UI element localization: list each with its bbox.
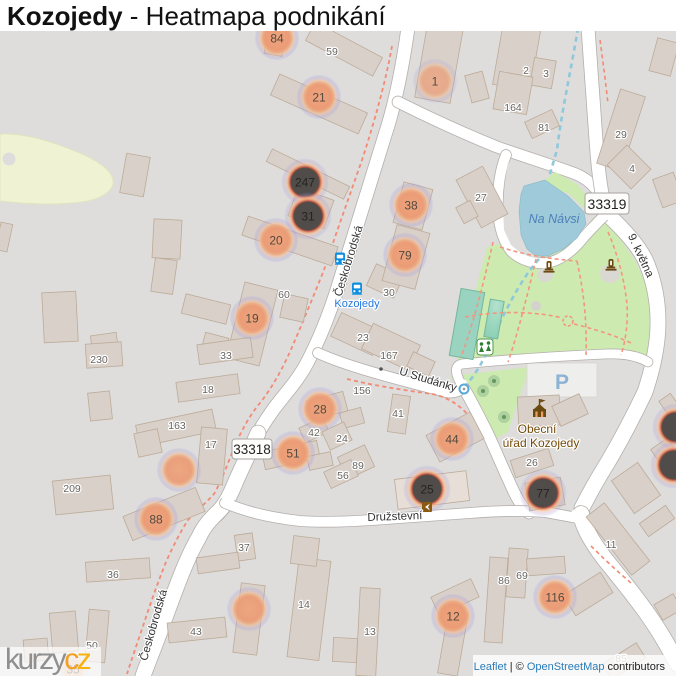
svg-text:30: 30 xyxy=(383,287,395,299)
svg-text:31: 31 xyxy=(301,210,315,224)
svg-text:18: 18 xyxy=(202,384,214,396)
svg-text:Kozojedy - Heatmapa podnikání: Kozojedy - Heatmapa podnikání xyxy=(7,1,386,31)
svg-text:81: 81 xyxy=(538,122,550,134)
svg-text:Leaflet | © OpenStreetMap cont: Leaflet | © OpenStreetMap contributors xyxy=(474,661,666,673)
svg-text:17: 17 xyxy=(205,439,217,451)
svg-text:42: 42 xyxy=(308,427,320,439)
svg-text:36: 36 xyxy=(107,569,119,581)
svg-text:116: 116 xyxy=(545,591,564,605)
svg-text:38: 38 xyxy=(404,199,418,213)
svg-text:88: 88 xyxy=(149,513,163,527)
svg-text:41: 41 xyxy=(392,408,404,420)
svg-text:33318: 33318 xyxy=(233,442,271,457)
svg-text:209: 209 xyxy=(63,483,81,495)
svg-text:77: 77 xyxy=(536,487,550,501)
svg-text:24: 24 xyxy=(336,433,348,445)
svg-text:44: 44 xyxy=(445,433,459,447)
svg-text:89: 89 xyxy=(352,460,364,472)
svg-text:59: 59 xyxy=(326,46,338,58)
svg-text:23: 23 xyxy=(357,332,369,344)
svg-text:2: 2 xyxy=(523,65,529,77)
svg-text:247: 247 xyxy=(295,176,315,190)
svg-text:28: 28 xyxy=(313,403,327,417)
svg-text:25: 25 xyxy=(420,483,434,497)
svg-text:kurzycz: kurzycz xyxy=(5,643,91,676)
svg-text:79: 79 xyxy=(398,249,412,263)
svg-text:27: 27 xyxy=(475,192,487,204)
svg-text:11: 11 xyxy=(606,539,617,551)
svg-text:20: 20 xyxy=(269,234,283,248)
svg-text:26: 26 xyxy=(526,457,538,469)
svg-text:14: 14 xyxy=(298,599,310,611)
svg-text:163: 163 xyxy=(168,420,186,432)
svg-text:29: 29 xyxy=(615,129,627,141)
svg-text:230: 230 xyxy=(90,354,108,366)
svg-text:21: 21 xyxy=(312,91,326,105)
svg-text:56: 56 xyxy=(337,470,349,482)
svg-text:Družstevní: Družstevní xyxy=(367,510,423,524)
svg-text:1: 1 xyxy=(432,75,439,89)
svg-text:167: 167 xyxy=(380,350,398,362)
svg-text:3: 3 xyxy=(543,68,549,80)
svg-text:Obecní: Obecní xyxy=(518,422,557,436)
svg-text:13: 13 xyxy=(364,626,376,638)
svg-text:4: 4 xyxy=(629,163,635,175)
svg-text:51: 51 xyxy=(286,447,300,461)
svg-text:164: 164 xyxy=(504,102,522,114)
svg-text:156: 156 xyxy=(353,385,371,397)
svg-text:úřad Kozojedy: úřad Kozojedy xyxy=(503,436,580,450)
svg-text:Kozojedy: Kozojedy xyxy=(334,298,380,310)
svg-text:60: 60 xyxy=(278,289,290,301)
svg-text:84: 84 xyxy=(270,32,284,46)
svg-text:33319: 33319 xyxy=(588,196,627,212)
svg-text:43: 43 xyxy=(190,626,202,638)
svg-text:Na Návsi: Na Návsi xyxy=(529,212,581,226)
svg-text:19: 19 xyxy=(245,312,259,326)
svg-text:P: P xyxy=(555,371,569,394)
svg-text:86: 86 xyxy=(498,575,510,587)
svg-text:37: 37 xyxy=(238,542,250,554)
svg-text:12: 12 xyxy=(446,610,460,624)
svg-text:69: 69 xyxy=(516,570,528,582)
svg-text:33: 33 xyxy=(220,350,232,362)
